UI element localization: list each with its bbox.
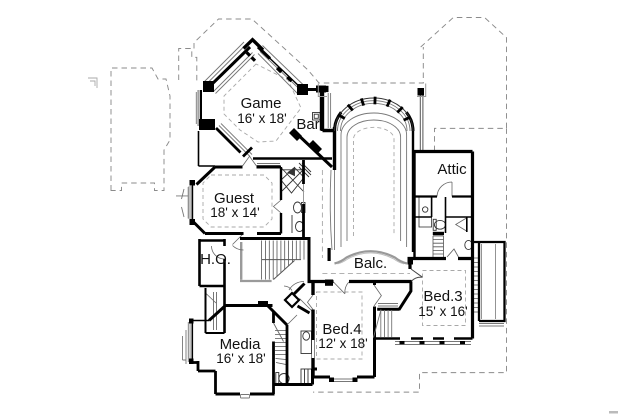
svg-text:Balc.: Balc. <box>354 255 387 272</box>
svg-text:18' x 14': 18' x 14' <box>210 205 259 220</box>
svg-text:Attic: Attic <box>437 161 467 178</box>
svg-text:Bar: Bar <box>296 116 319 133</box>
svg-text:H.O.: H.O. <box>200 251 231 268</box>
svg-text:16' x 18': 16' x 18' <box>237 111 286 126</box>
svg-text:Game: Game <box>241 95 282 112</box>
svg-text:15' x 16': 15' x 16' <box>418 304 467 319</box>
svg-text:12' x 18': 12' x 18' <box>318 336 367 351</box>
svg-text:16' x 18': 16' x 18' <box>216 351 265 366</box>
svg-text:Bed.3: Bed.3 <box>423 288 462 305</box>
